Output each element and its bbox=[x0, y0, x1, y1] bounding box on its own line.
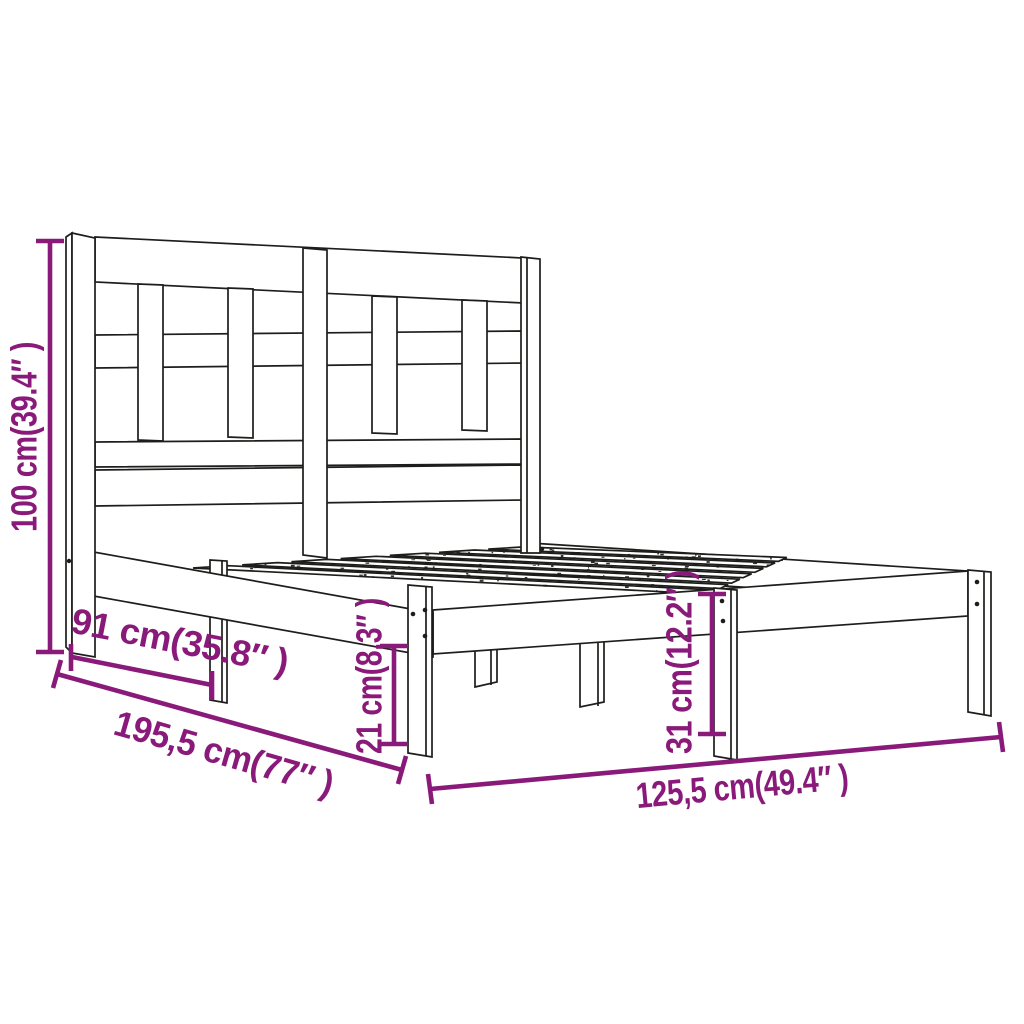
headboard-slat bbox=[138, 284, 163, 441]
headboard-right-post bbox=[521, 257, 540, 553]
diagram-stage: 100 cm(39.4″ ) 91 cm(35.8″ ) 195,5 cm(77… bbox=[0, 0, 1024, 1024]
dimension-label-clearance-height: 21 cm(8.3″ ) bbox=[349, 598, 390, 754]
headboard-slat bbox=[228, 288, 253, 438]
screw-dot bbox=[721, 619, 726, 624]
dimension-label-rail-height: 31 cm(12.2″ ) bbox=[659, 570, 700, 754]
support-leg-mid-a bbox=[475, 648, 497, 687]
screw-dot bbox=[540, 547, 544, 551]
leg-front-left bbox=[408, 585, 432, 757]
screw-dot bbox=[411, 612, 416, 617]
dimension-label-total-width: 125,5 cm(49.4″ ) bbox=[634, 756, 850, 816]
screw-dot bbox=[423, 634, 428, 639]
dimension-label-headboard-height: 100 cm(39.4″ ) bbox=[4, 342, 45, 532]
screw-dot bbox=[975, 580, 980, 585]
screw-dot bbox=[423, 608, 428, 613]
headboard-left-leg bbox=[66, 233, 95, 657]
headboard-slat bbox=[372, 296, 397, 434]
bed-line-art bbox=[66, 233, 991, 760]
screw-dot bbox=[67, 559, 71, 563]
dimension-label-total-length: 195,5 cm(77″ ) bbox=[110, 702, 339, 804]
screw-dot bbox=[720, 599, 725, 604]
support-leg-mid-b bbox=[580, 640, 604, 707]
bed-frame-dimension-diagram: 100 cm(39.4″ ) 91 cm(35.8″ ) 195,5 cm(77… bbox=[0, 0, 1024, 1024]
leg-far-right bbox=[968, 570, 991, 716]
headboard-slat bbox=[462, 300, 487, 431]
dimension-headboard-height: 100 cm(39.4″ ) bbox=[4, 241, 65, 652]
headboard-center-post bbox=[303, 248, 327, 558]
screw-dot bbox=[975, 602, 980, 607]
